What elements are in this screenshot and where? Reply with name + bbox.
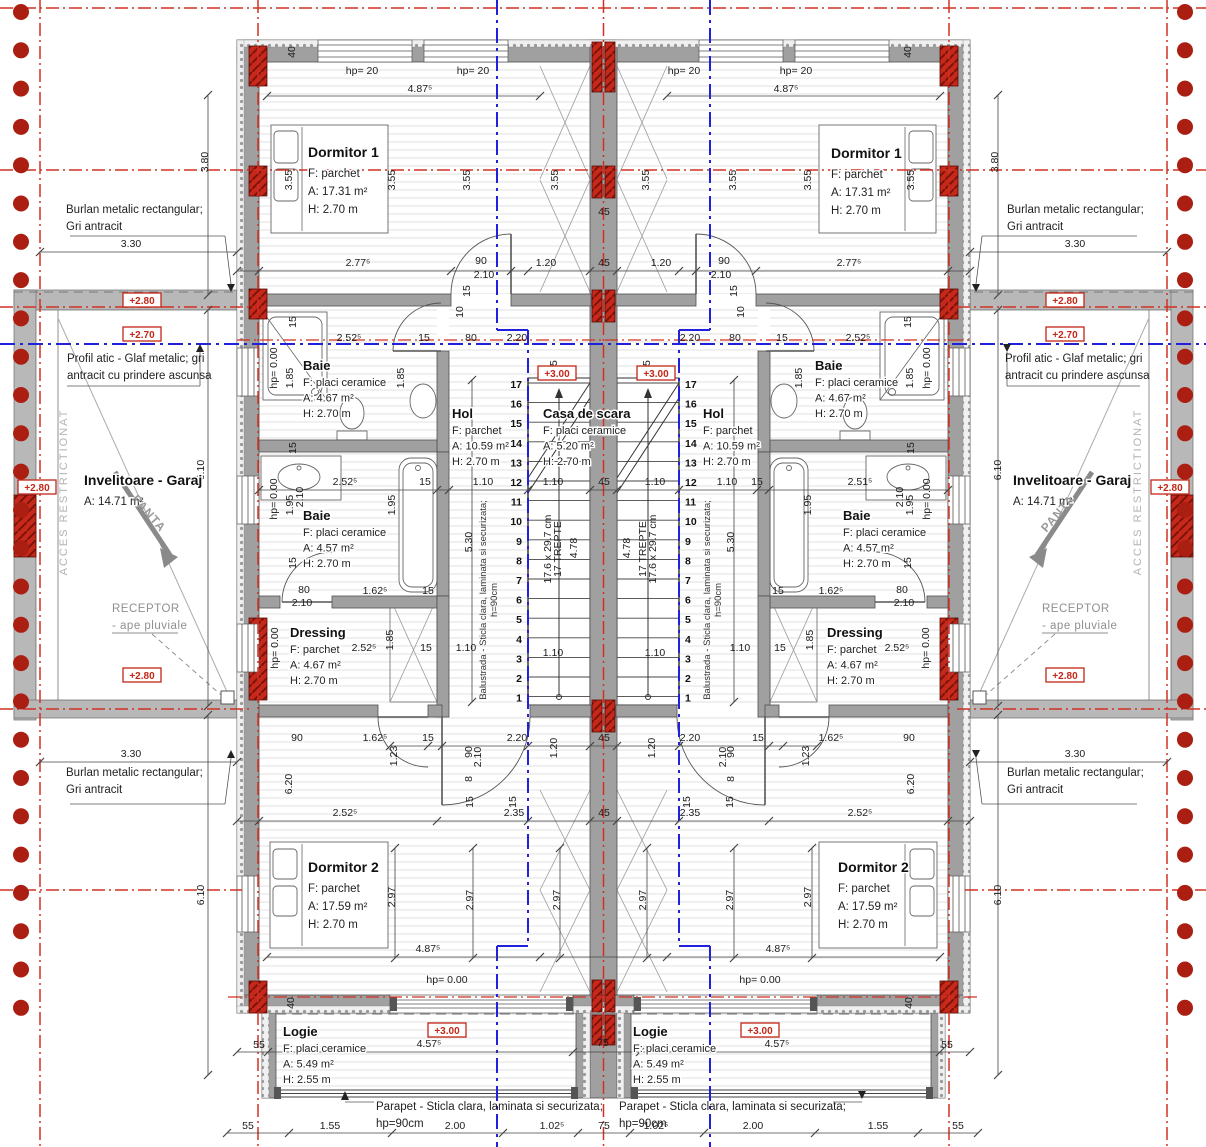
room-attr: A: 5.49 m² — [633, 1059, 684, 1071]
boundary-dot — [13, 847, 29, 863]
dim-label: 4.87⁵ — [766, 943, 791, 955]
boundary-dot — [13, 272, 29, 288]
door-frame — [390, 997, 397, 1011]
level-marker: +2.80 — [129, 296, 155, 307]
annotation: Burlan metalic rectangular; — [1007, 204, 1144, 216]
dim-label: 15 — [461, 285, 473, 297]
room-attr: F: parchet — [452, 425, 502, 437]
receptor-box — [973, 691, 986, 704]
dim-label: 3.55 — [549, 170, 561, 191]
dim-label: 15 — [752, 732, 764, 744]
level-marker: +2.70 — [1052, 330, 1078, 341]
annotation: Parapet - Sticla clara, laminata si secu… — [619, 1101, 846, 1113]
step-number: 5 — [685, 614, 691, 626]
dim-label: 80 — [465, 332, 477, 344]
boundary-dot — [1177, 693, 1193, 709]
door-frame — [566, 997, 573, 1011]
room-attr: H: 2.70 m — [303, 558, 351, 570]
boundary-dot — [1177, 81, 1193, 97]
parapet-post — [274, 1087, 281, 1099]
boundary-dot — [1177, 1000, 1193, 1016]
step-number: 8 — [516, 555, 522, 567]
step-number: 17 — [685, 379, 697, 391]
room-attr: F: parchet — [308, 168, 361, 180]
boundary-dot — [13, 808, 29, 824]
step-number: 7 — [685, 575, 691, 587]
room-title: Dormitor 2 — [838, 859, 909, 875]
boundary-dot — [13, 425, 29, 441]
insulation-strip — [237, 40, 244, 1013]
dim-label: hp= 0.00 — [426, 974, 467, 986]
insulation-strip — [262, 1013, 269, 1098]
room-title: Dormitor 1 — [308, 144, 379, 160]
room-title: Dressing — [827, 625, 883, 640]
room-title: Hol — [452, 406, 473, 421]
dim-label: 2.52⁵ — [352, 642, 377, 654]
dim-label: 15 — [774, 642, 786, 654]
annotation: - ape pluviale — [1042, 620, 1117, 632]
dim-label: 2.10 — [717, 747, 729, 768]
annotation: Gri antracit — [66, 221, 123, 233]
dim-label: 2.52⁵ — [333, 476, 358, 488]
boundary-dot — [1177, 425, 1193, 441]
step-number: 3 — [516, 653, 522, 665]
dim-label: 3.55 — [905, 170, 917, 191]
boundary-dot — [13, 234, 29, 250]
dim-label: 40 — [903, 997, 915, 1009]
dim-label: 15 — [287, 442, 299, 454]
annotation: - ape pluviale — [112, 620, 187, 632]
boundary-dot — [13, 962, 29, 978]
dim-label: 1.20 — [536, 257, 557, 269]
boundary-dot — [1177, 655, 1193, 671]
structural-pillar — [605, 42, 615, 92]
dim-label: 1.23 — [388, 746, 400, 767]
boundary-dot — [1177, 157, 1193, 173]
wall — [770, 440, 948, 452]
dim-label: hp= 0.00 — [921, 347, 933, 388]
dim-label: 1.55 — [320, 1120, 341, 1132]
dim-label: 15 — [420, 642, 432, 654]
dim-label: 2.35 — [504, 807, 525, 819]
structural-pillar — [605, 980, 615, 1012]
dim-label: hp= 0.00 — [920, 627, 932, 668]
step-number: 1 — [685, 693, 691, 705]
step-number: 13 — [510, 457, 522, 469]
dim-label: 2.10 — [294, 487, 306, 508]
dim-label: 1.62⁵ — [363, 585, 388, 597]
dim-label: 2.51⁵ — [848, 476, 873, 488]
step-number: 4 — [685, 634, 691, 646]
step-number: 6 — [685, 595, 691, 607]
dim-label: 90 — [718, 255, 730, 267]
dim-label: 4.57⁵ — [417, 1038, 442, 1050]
boundary-dot — [1177, 349, 1193, 365]
room-attr: F: placi ceramice — [283, 1043, 366, 1055]
room-attr: A: 5.49 m² — [283, 1059, 334, 1071]
dim-label: 2.35 — [680, 807, 701, 819]
structural-pillar — [592, 290, 602, 322]
dim-label: 2.10 — [472, 747, 484, 768]
fixture — [273, 849, 297, 879]
dim-label: 1.20 — [646, 738, 658, 759]
boundary-dot — [13, 4, 29, 20]
room-attr: A: 17.31 m² — [831, 187, 891, 199]
fixture-basin — [410, 384, 436, 418]
dim-label: 2.52⁵ — [885, 642, 910, 654]
dim-label: 3.55 — [802, 170, 814, 191]
wall — [332, 596, 437, 608]
boundary-dot — [1177, 962, 1193, 978]
room-attr: H: 2.70 m — [543, 456, 591, 468]
dim-label: 2.10 — [292, 597, 313, 609]
dim-label: 90 — [475, 255, 487, 267]
room-attr: A: 17.59 m² — [308, 901, 368, 913]
dim-label: 8 — [725, 776, 737, 782]
room-attr: A: 4.67 m² — [815, 393, 866, 405]
dim-label: 3.55 — [640, 170, 652, 191]
boundary-dot — [1177, 808, 1193, 824]
dim-label: 15 — [772, 585, 784, 597]
annotation: Burlan metalic rectangular; — [1007, 767, 1144, 779]
room-attr: F: placi ceramice — [543, 425, 626, 437]
dim-label: 40 — [285, 997, 297, 1009]
boundary-dot — [13, 387, 29, 403]
annotation: Burlan metalic rectangular; — [66, 767, 203, 779]
dim-label: hp= 0.00 — [921, 478, 933, 519]
dim-label: 6.20 — [905, 774, 917, 795]
step-number: 11 — [685, 497, 696, 509]
step-number: 4 — [516, 634, 522, 646]
wall — [437, 351, 449, 452]
boundary-dot — [13, 770, 29, 786]
dim-label: 2.97 — [551, 890, 563, 911]
parapet-post — [631, 1087, 638, 1099]
boundary-dot — [13, 42, 29, 58]
annotation: Burlan metalic rectangular; — [66, 204, 203, 216]
wall — [616, 294, 696, 306]
dim-label: 2.52⁵ — [337, 332, 362, 344]
dim-label: 2.10 — [711, 269, 732, 281]
boundary-dot — [1177, 923, 1193, 939]
room-title: Baie — [303, 508, 330, 523]
dim-label: 80 — [729, 332, 741, 344]
dim-label: 2.00 — [445, 1120, 466, 1132]
dim-label: 4.57⁵ — [765, 1038, 790, 1050]
boundary-dot — [13, 196, 29, 212]
dim-label: 55 — [242, 1120, 254, 1132]
annotation: antracit cu prindere ascunsa — [1005, 370, 1150, 382]
dim-label: 45 — [598, 257, 610, 269]
level-marker: +2.80 — [129, 671, 155, 682]
dim-label: 2.97 — [464, 890, 476, 911]
wall — [758, 351, 770, 452]
dim-label: 55 — [952, 1120, 964, 1132]
room-title: Logie — [283, 1024, 318, 1039]
room-attr: F: parchet — [290, 644, 340, 656]
parapet-post — [571, 1087, 578, 1099]
annotation: Gri antracit — [66, 784, 123, 796]
step-number: 10 — [685, 516, 697, 528]
room-attr: F: placi ceramice — [843, 527, 926, 539]
dim-label: 40 — [902, 46, 914, 58]
dim-label: 4.87⁵ — [774, 83, 799, 95]
structural-pillar — [605, 290, 615, 322]
dim-label: 8 — [463, 776, 475, 782]
boundary-dot — [1177, 847, 1193, 863]
fixture — [337, 431, 367, 440]
boundary-dot — [1177, 42, 1193, 58]
boundary-dot — [13, 617, 29, 633]
step-number: 13 — [685, 457, 697, 469]
dim-label: 55 — [941, 1039, 953, 1051]
boundary-dot — [13, 540, 29, 556]
rotated-label: Balustrada - Sticla clara, laminata si s… — [702, 500, 713, 700]
dim-label: 6.10 — [992, 460, 1004, 481]
dim-label: 15 — [751, 476, 763, 488]
door-frame — [810, 997, 817, 1011]
dim-label: 1.95 — [386, 495, 398, 516]
dim-label: 1.85 — [284, 368, 296, 389]
dim-label: 1.85 — [904, 368, 916, 389]
step-number: 5 — [516, 614, 522, 626]
wall — [511, 294, 591, 306]
annotation: Gri antracit — [1007, 784, 1064, 796]
room-attr: A: 17.59 m² — [838, 901, 898, 913]
room-title: Dormitor 2 — [308, 859, 379, 875]
room-attr: A: 4.67 m² — [290, 660, 341, 672]
step-number: 8 — [685, 555, 691, 567]
room-attr: F: parchet — [703, 425, 753, 437]
dim-label: 15 — [902, 557, 914, 569]
dim-label: 1.02⁵ — [540, 1120, 565, 1132]
room-title: Invelitoare - Garaj — [1013, 472, 1131, 488]
dim-label: 1.23 — [800, 746, 812, 767]
insulation-strip — [938, 1013, 945, 1098]
dim-label: 6.10 — [992, 885, 1004, 906]
dim-label: 2.97 — [386, 887, 398, 908]
rotated-label: Balustrada - Sticla clara, laminata si s… — [478, 500, 489, 700]
room-attr: A: 10.59 m² — [452, 441, 509, 453]
step-number: 14 — [685, 438, 697, 450]
structural-pillar — [592, 42, 602, 92]
fixture — [274, 131, 298, 163]
room-attr: F: placi ceramice — [303, 377, 386, 389]
dim-label: 2.10 — [894, 597, 915, 609]
room-attr: H: 2.70 m — [843, 558, 891, 570]
boundary-dot — [13, 885, 29, 901]
dim-label: 1.62⁵ — [819, 732, 844, 744]
structural-pillar — [592, 700, 602, 732]
step-number: 7 — [516, 575, 522, 587]
dim-label: 80 — [298, 584, 310, 596]
boundary-dot — [1177, 196, 1193, 212]
dim-label: 6.20 — [283, 774, 295, 795]
boundary-dot — [13, 119, 29, 135]
level-marker: +2.70 — [129, 330, 155, 341]
fixture-basin — [278, 464, 320, 490]
step-number: 10 — [510, 516, 522, 528]
room-title: Dressing — [290, 625, 346, 640]
boundary-dot — [1177, 502, 1193, 518]
dim-label: 3.55 — [727, 170, 739, 191]
dim-label: 90 — [903, 732, 915, 744]
dim-label: 3.55 — [283, 170, 295, 191]
dim-label: 55 — [253, 1039, 265, 1051]
dim-label: 2.52⁵ — [846, 332, 871, 344]
dim-label: 15 — [422, 732, 434, 744]
boundary-dot — [13, 464, 29, 480]
room-attr: H: 2.55 m — [633, 1074, 681, 1086]
structural-pillar — [592, 166, 602, 198]
boundary-dot — [13, 732, 29, 748]
dim-label: 1.85 — [793, 368, 805, 389]
dim-label: 1.10 — [543, 476, 564, 488]
wall — [259, 705, 378, 717]
level-marker: +2.80 — [1052, 671, 1078, 682]
dim-label: 15 — [724, 796, 736, 808]
dim-label: hp= 20 — [780, 65, 813, 77]
boundary-dot — [1177, 579, 1193, 595]
room-attr: F: parchet — [827, 644, 877, 656]
room-attr: F: parchet — [308, 883, 361, 895]
dim-label: 15 — [905, 442, 917, 454]
step-number: 9 — [516, 536, 522, 548]
step-number: 12 — [685, 477, 697, 489]
wall — [765, 705, 779, 717]
wall — [758, 596, 770, 717]
dim-label: 90 — [291, 732, 303, 744]
level-marker: +3.00 — [747, 1026, 773, 1037]
dim-label: 45 — [598, 807, 610, 819]
boundary-dot — [1177, 464, 1193, 480]
room-attr: F: placi ceramice — [633, 1043, 716, 1055]
annotation: hp=90cm — [619, 1118, 667, 1130]
room-attr: H: 2.70 m — [290, 675, 338, 687]
dim-label: 3.30 — [1065, 748, 1086, 760]
wall — [259, 294, 451, 306]
dim-label: 4.78 — [621, 538, 633, 559]
step-number: 16 — [510, 399, 522, 411]
dim-label: hp= 20 — [668, 65, 701, 77]
room-attr: A: 4.67 m² — [827, 660, 878, 672]
rotated-label: h=90cm — [713, 583, 724, 617]
annotation: RECEPTOR — [1042, 603, 1110, 615]
dim-label: 10 — [735, 306, 747, 318]
dim-label: 1.10 — [717, 476, 738, 488]
room-title: Logie — [633, 1024, 668, 1039]
dim-label: 5.30 — [725, 532, 737, 553]
annotation: Profil atic - Glaf metalic; gri — [67, 353, 204, 365]
room-title: Hol — [703, 406, 724, 421]
insulation-strip — [617, 1013, 624, 1098]
structural-pillar — [605, 700, 615, 732]
annotation: RECEPTOR — [112, 603, 180, 615]
dim-label: 2.77⁵ — [837, 257, 862, 269]
dim-label: 1.10 — [730, 642, 751, 654]
room-attr: H: 2.70 m — [308, 204, 358, 216]
step-number: 2 — [685, 673, 691, 685]
dim-label: 1.10 — [473, 476, 494, 488]
step-number: 15 — [510, 418, 522, 430]
dim-label: 3.80 — [989, 152, 1001, 173]
wall — [829, 705, 948, 717]
dim-label: 3.55 — [461, 170, 473, 191]
room-title: Baie — [303, 358, 330, 373]
dim-label: 1.85 — [395, 368, 407, 389]
room-attr: F: placi ceramice — [815, 377, 898, 389]
dim-label: 2.20 — [507, 332, 528, 344]
dim-label: 15 — [419, 476, 431, 488]
room-attr: H: 2.70 m — [838, 919, 888, 931]
dim-label: 4.87⁵ — [408, 83, 433, 95]
wall — [259, 440, 437, 452]
wall — [437, 596, 449, 717]
dim-label: 3.55 — [386, 170, 398, 191]
boundary-dot — [1177, 732, 1193, 748]
level-marker: +2.80 — [1157, 483, 1183, 494]
wall — [770, 596, 875, 608]
dim-label: 45 — [598, 206, 610, 218]
fixture — [774, 463, 804, 587]
dim-label: 1.10 — [645, 476, 666, 488]
room-title: Casa de scara — [543, 406, 631, 421]
rotated-label: h=90cm — [489, 583, 500, 617]
dim-label: hp= 20 — [346, 65, 379, 77]
dim-label: 40 — [286, 46, 298, 58]
room-attr: H: 2.70 m — [452, 456, 500, 468]
dim-label: 2.20 — [680, 332, 701, 344]
dim-label: 10 — [454, 306, 466, 318]
step-number: 6 — [516, 595, 522, 607]
boundary-dot — [13, 693, 29, 709]
room-title: Baie — [815, 358, 842, 373]
step-number: 14 — [510, 438, 522, 450]
receptor-box — [221, 691, 234, 704]
dim-label: 1.20 — [651, 257, 672, 269]
step-number: 2 — [516, 673, 522, 685]
dim-label: 6.10 — [195, 885, 207, 906]
room-attr: H: 2.70 m — [303, 408, 351, 420]
dim-label: 2.10 — [474, 269, 495, 281]
insulation-strip — [583, 1013, 590, 1098]
dim-label: 15 — [418, 332, 430, 344]
door-frame — [634, 997, 641, 1011]
boundary-dot — [1177, 119, 1193, 135]
boundary-dot — [1177, 387, 1193, 403]
step-number: 16 — [685, 399, 697, 411]
dim-label: 2.10 — [894, 487, 906, 508]
wall — [616, 705, 677, 717]
structural-pillar — [605, 166, 615, 198]
dim-label: 2.97 — [802, 887, 814, 908]
dim-label: 1.10 — [645, 647, 666, 659]
dim-label: 1.20 — [548, 738, 560, 759]
room-attr: F: parchet — [838, 883, 891, 895]
step-number: 9 — [685, 536, 691, 548]
boundary-dot — [13, 579, 29, 595]
room-attr: A: 17.31 m² — [308, 186, 368, 198]
rotated-label: ACCES RESTRICTIONAT — [58, 409, 70, 576]
wall — [756, 294, 948, 306]
fixture — [910, 849, 934, 879]
floor-plan-drawing: 4040hp= 20hp= 20hp= 20hp= 204.87⁵4.87⁵3.… — [0, 0, 1206, 1147]
dim-label: 15 — [422, 585, 434, 597]
boundary-dot — [1177, 617, 1193, 633]
boundary-dot — [1177, 4, 1193, 20]
annotation: Profil atic - Glaf metalic; gri — [1005, 353, 1142, 365]
annotation: Parapet - Sticla clara, laminata si secu… — [376, 1101, 603, 1113]
